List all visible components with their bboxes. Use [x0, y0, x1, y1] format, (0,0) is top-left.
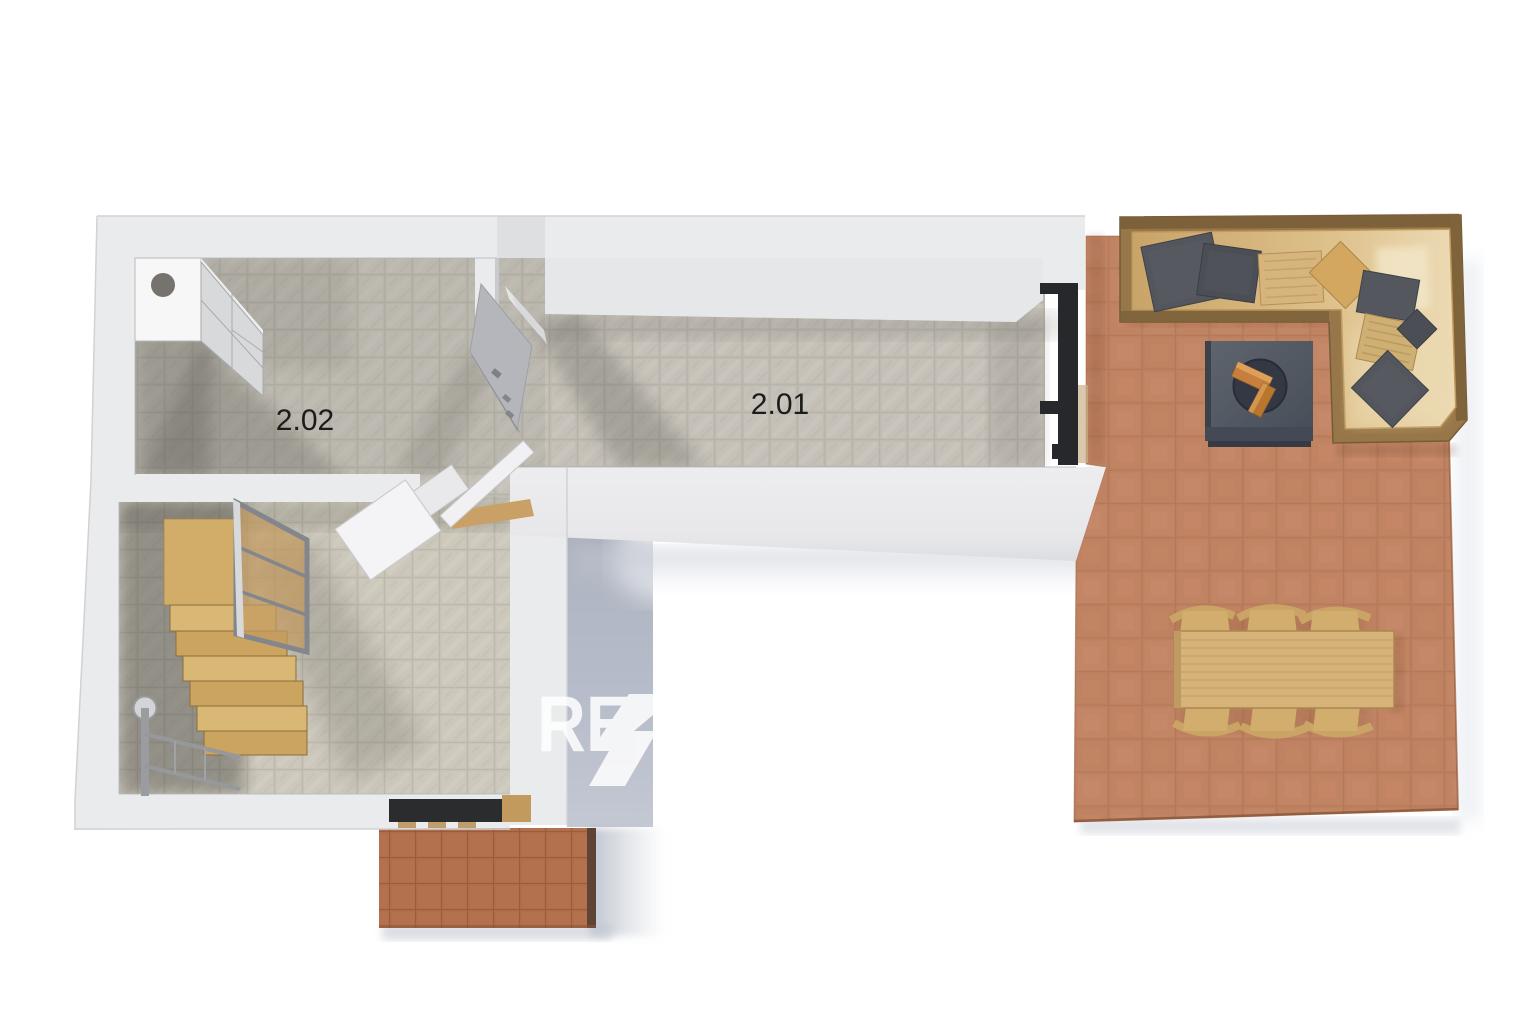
- svg-text:2.01: 2.01: [751, 388, 809, 421]
- svg-text:2.02: 2.02: [276, 404, 334, 437]
